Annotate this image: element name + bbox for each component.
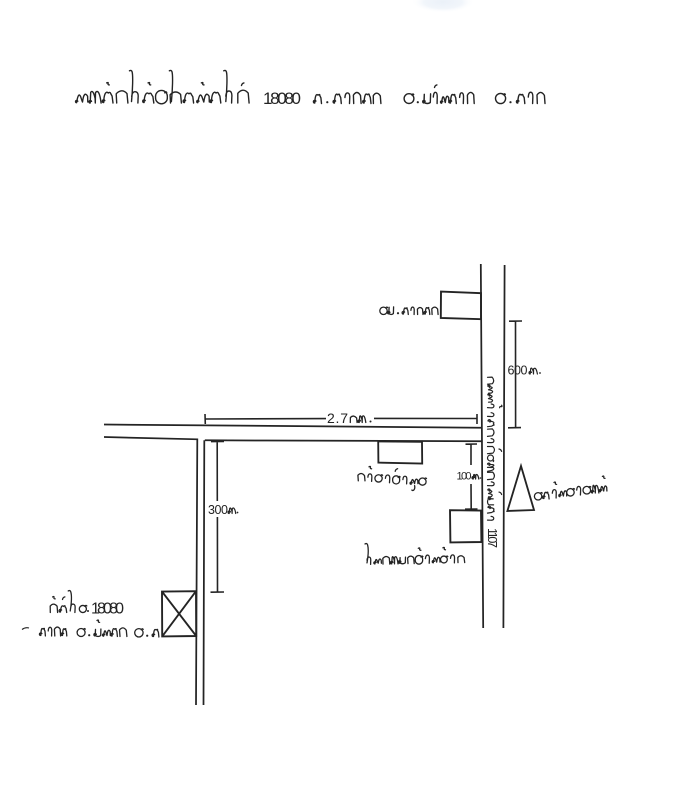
svg-text:2.7: 2.7 — [327, 410, 348, 426]
svg-text:100: 100 — [457, 471, 472, 483]
svg-text:600: 600 — [508, 364, 528, 378]
svg-text:18080: 18080 — [263, 89, 301, 108]
svg-text:1107: 1107 — [485, 528, 499, 548]
svg-text:300: 300 — [208, 503, 228, 517]
svg-text:18080: 18080 — [91, 601, 124, 618]
